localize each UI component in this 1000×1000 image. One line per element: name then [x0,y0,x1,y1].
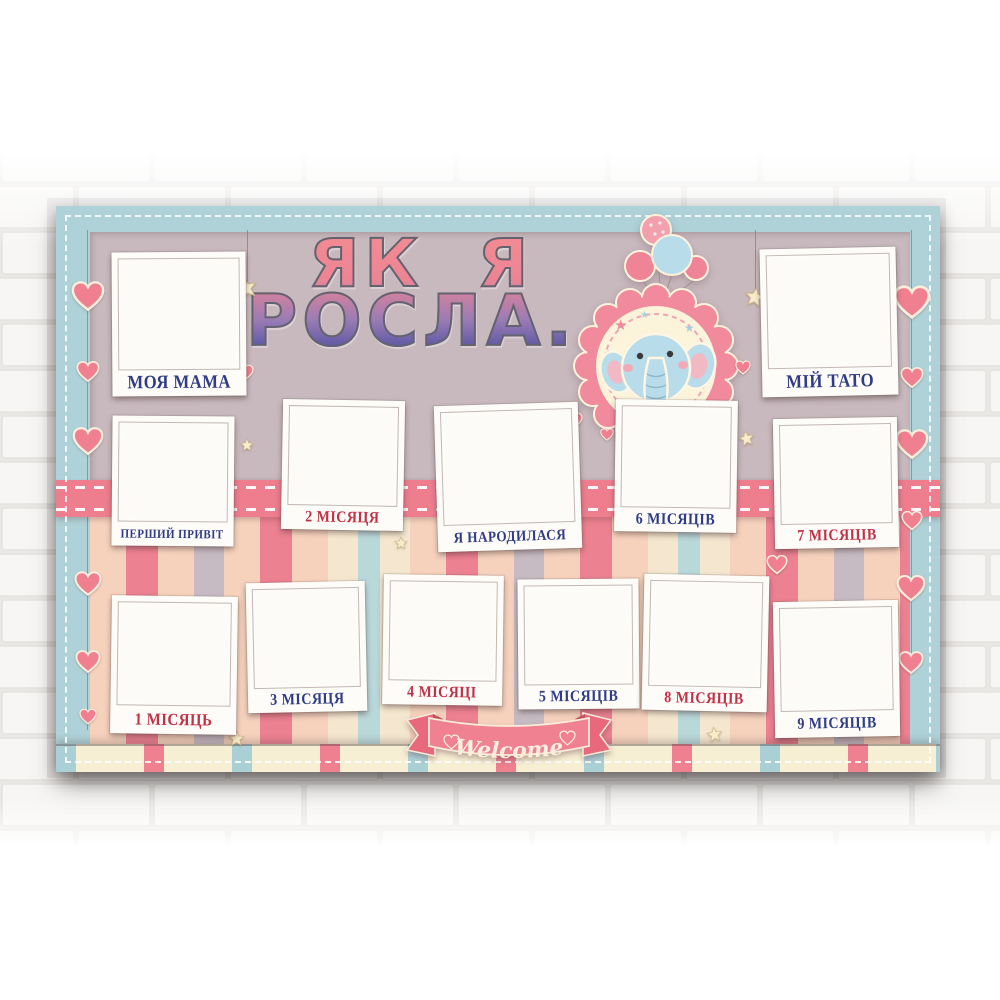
frame-label: 5 МІСЯЦІВ [524,685,633,710]
photo-frame-month-4: 4 МІСЯЦІ [382,574,504,706]
wall-fade [0,800,1000,860]
photo-placeholder [620,405,731,509]
welcome-banner-text: Welcome [453,734,565,764]
photo-frame-month-1: 1 МІСЯЦЬ [110,595,238,735]
photo-frame-tato: МІЙ ТАТО [759,247,898,398]
photo-frame-month-8: 8 МІСЯЦІВ [642,574,770,713]
heart-icon [79,708,97,725]
frame-label: МОЯ МАМА [118,370,240,397]
frame-label: 1 МІСЯЦЬ [116,705,230,735]
heart-icon [74,570,102,597]
heart-icon [896,574,926,602]
frame-label: 9 МІСЯЦІВ [781,710,894,738]
frame-label: 8 МІСЯЦІВ [648,686,761,712]
welcome-banner-label: Welcome [453,734,565,764]
heart-icon [75,649,101,674]
balloons-icon [625,215,708,281]
photo-placeholder [116,601,231,707]
photo-frame-mama: МОЯ МАМА [111,252,246,397]
heart-icon [898,650,924,675]
heart-icon [600,428,614,441]
poster-title: ЯК Я РОСЛА... [246,234,596,353]
photo-placeholder [252,587,361,689]
frame-label: Я НАРОДИЛАСЯ [444,522,577,552]
frame-label: 2 МІСЯЦЯ [287,505,397,531]
poster-title-line2: РОСЛА... [246,289,596,353]
heart-icon [766,554,788,575]
star-icon [394,536,408,550]
heart-icon [901,510,923,531]
frame-label: МІЙ ТАТО [768,367,893,398]
heart-icon [71,280,105,312]
frame-label: ПЕРШИЙ ПРИВІТ [117,522,227,547]
photo-frame-month-2: 2 МІСЯЦЯ [281,399,405,531]
svg-text:★: ★ [614,316,627,334]
frame-label: 3 МІСЯЦЯ [254,687,361,713]
photo-placeholder [440,408,576,526]
star-icon [705,725,724,744]
photo-frame-month-3: 3 МІСЯЦЯ [246,581,368,713]
svg-text:★: ★ [640,310,649,321]
heart-icon [735,360,751,375]
heart-icon [900,366,924,389]
frame-label: 7 МІСЯЦІВ [781,523,893,549]
baby-growth-poster: ЯК Я РОСЛА... [56,206,940,772]
photo-placeholder [118,422,229,523]
photo-placeholder [779,423,893,525]
photo-placeholder [648,580,763,688]
photo-placeholder [118,258,241,371]
photo-placeholder [779,606,894,712]
photo-placeholder [287,405,399,507]
frame-label: 6 МІСЯЦІВ [620,507,730,533]
star-icon [240,438,254,452]
photo-frame-month-6: 6 МІСЯЦІВ [614,399,738,533]
photo-placeholder [766,253,892,370]
svg-text:★: ★ [684,321,695,335]
photo-frame-month-7: 7 МІСЯЦІВ [773,417,899,549]
heart-icon [893,284,931,320]
star-icon [736,428,756,448]
photo-frame-month-9: 9 МІСЯЦІВ [773,600,900,738]
frame-label: 4 МІСЯЦІ [388,680,496,706]
photo-frame-month-5: 5 МІСЯЦІВ [517,578,639,709]
heart-icon [895,428,929,460]
photo-placeholder [388,580,497,681]
heart-icon [72,426,104,456]
photo-frame-first-hello: ПЕРШИЙ ПРИВІТ [111,415,234,546]
photo-placeholder [523,585,633,686]
welcome-banner: Welcome [403,708,615,772]
photo-frame-born: Я НАРОДИЛАСЯ [434,402,583,552]
heart-icon [76,360,100,383]
